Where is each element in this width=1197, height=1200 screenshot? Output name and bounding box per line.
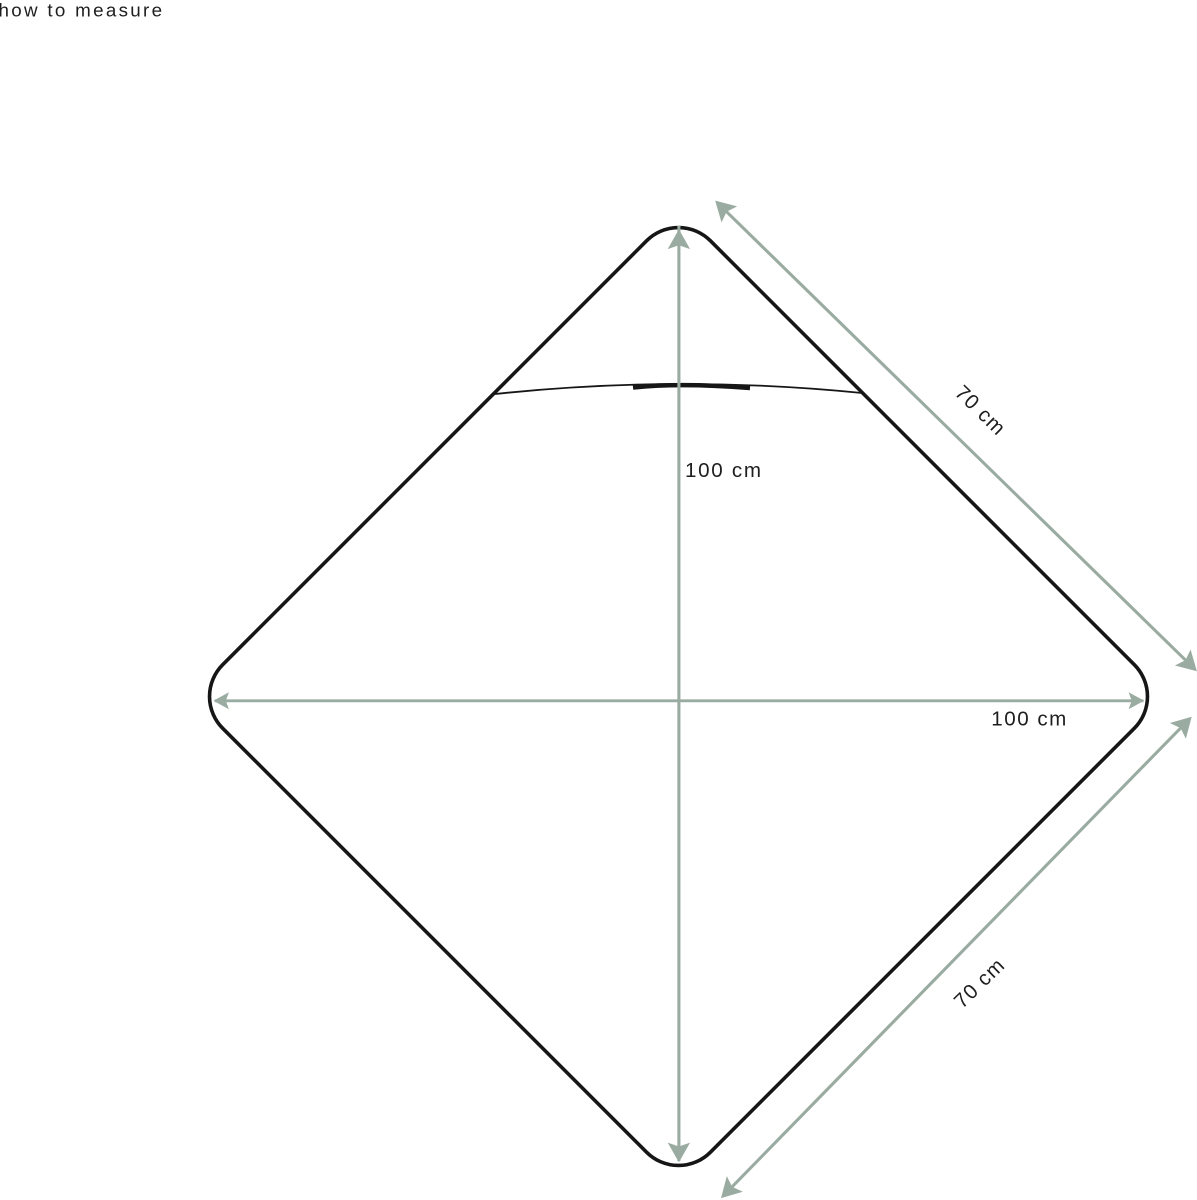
svg-text:70 cm: 70 cm	[950, 953, 1010, 1013]
svg-text:how to measure: how to measure	[0, 0, 164, 21]
svg-text:70 cm: 70 cm	[950, 381, 1010, 441]
svg-text:100 cm: 100 cm	[685, 459, 763, 482]
svg-text:100 cm: 100 cm	[991, 707, 1068, 730]
